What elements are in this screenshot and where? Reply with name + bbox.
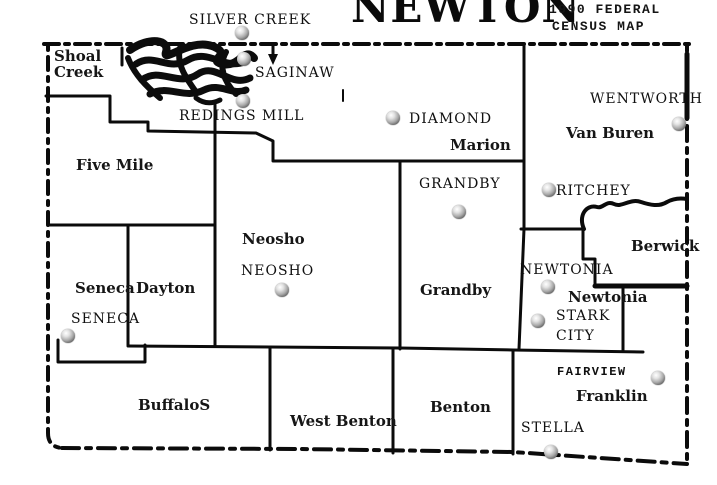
census-map: NEWTON 1990 FEDERAL CENSUS MAP Shoal Cre… — [0, 0, 717, 485]
town-marker-saginaw — [237, 52, 251, 66]
township-label-grandby: Grandby — [420, 282, 491, 298]
township-label-berwick: Berwick — [631, 238, 699, 254]
town-label-wentworth: WENTWORTH — [590, 89, 703, 109]
map-label-layer: Shoal CreekFive MileSenecaDaytonNeoshoMa… — [0, 0, 717, 485]
town-marker-newtonia-town — [541, 280, 555, 294]
town-label-neosho-town: NEOSHO — [241, 261, 314, 281]
town-label-ritchey: RITCHEY — [556, 181, 631, 201]
town-marker-ritchey — [542, 183, 556, 197]
township-label-dayton: Dayton — [136, 280, 195, 296]
town-label-fairview: FAIRVIEW — [557, 365, 627, 379]
town-label-saginaw: SAGINAW — [255, 63, 335, 83]
township-label-shoal-creek: Shoal Creek — [54, 48, 103, 80]
township-label-buffalos: BuffaloS — [138, 397, 210, 413]
township-label-five-mile: Five Mile — [76, 157, 153, 173]
town-marker-neosho-town — [275, 283, 289, 297]
town-label-diamond: DIAMOND — [409, 109, 492, 129]
town-marker-grandby-town — [452, 205, 466, 219]
town-marker-stark-city — [531, 314, 545, 328]
township-label-seneca: Seneca — [75, 280, 135, 296]
town-label-stark-city: STARK CITY — [556, 306, 610, 346]
town-marker-stella — [544, 445, 558, 459]
township-label-van-buren: Van Buren — [566, 125, 654, 141]
township-label-newtonia: Newtonia — [568, 289, 647, 305]
township-label-west-benton: West Benton — [290, 413, 397, 429]
town-marker-wentworth — [672, 117, 686, 131]
town-label-silver-creek: SILVER CREEK — [189, 10, 311, 30]
town-label-grandby-town: GRANDBY — [419, 174, 501, 194]
town-marker-fairview — [651, 371, 665, 385]
town-marker-seneca-town — [61, 329, 75, 343]
town-marker-diamond — [386, 111, 400, 125]
township-label-marion: Marion — [450, 137, 511, 153]
town-label-stella: STELLA — [521, 418, 585, 438]
town-label-newtonia-town: NEWTONIA — [520, 260, 614, 280]
township-label-franklin: Franklin — [576, 388, 648, 404]
town-label-seneca-town: SENECA — [71, 309, 140, 329]
township-label-benton: Benton — [430, 399, 491, 415]
township-label-neosho: Neosho — [242, 231, 305, 247]
town-label-redings-mill: REDINGS MILL — [179, 106, 304, 126]
